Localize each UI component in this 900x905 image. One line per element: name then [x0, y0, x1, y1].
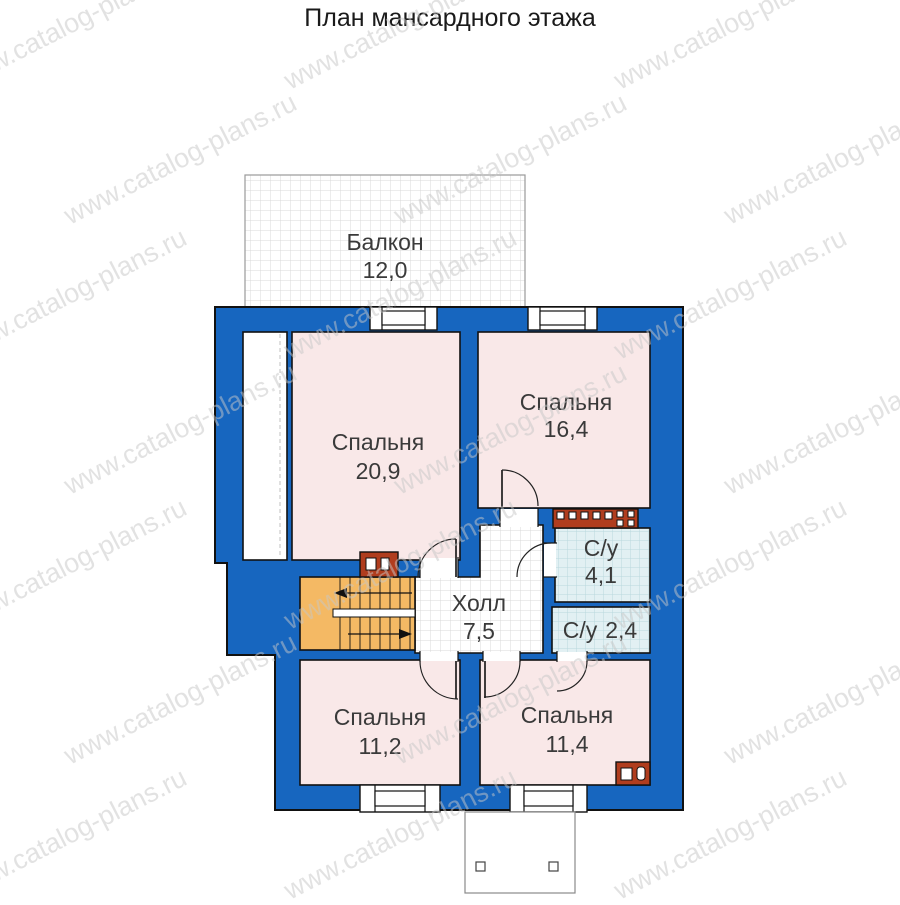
bedroom-bottom-left-label: Спальня — [334, 704, 426, 730]
bathroom-main-area: 4,1 — [585, 562, 617, 588]
window-top-right — [528, 307, 597, 330]
porch — [465, 812, 575, 893]
bedroom-bottom-right-label: Спальня — [521, 702, 613, 728]
vent-block-bathroom — [553, 509, 638, 528]
hall-label: Холл — [452, 590, 506, 616]
hall-area: 7,5 — [463, 618, 495, 644]
porch-column-left — [476, 862, 485, 871]
bathroom-main: С/у 4,1 — [555, 528, 650, 602]
bedroom-main-label: Спальня — [332, 429, 424, 455]
floor-plan-page: План мансардного этажа Балкон 12,0 Спаль… — [0, 0, 900, 900]
bathroom-main-label: С/у — [584, 535, 619, 561]
balcony-label: Балкон — [346, 229, 423, 255]
bedroom-main: Спальня 20,9 — [292, 332, 460, 560]
vent-block-bedroom — [616, 762, 650, 785]
stair-landing-rail — [333, 609, 415, 617]
bedroom-bottom-right-area: 11,4 — [545, 731, 588, 757]
porch-outline — [465, 812, 575, 893]
floor-plan-drawing: План мансардного этажа Балкон 12,0 Спаль… — [0, 0, 900, 900]
porch-column-right — [549, 862, 558, 871]
window-bottom-right — [510, 785, 587, 812]
